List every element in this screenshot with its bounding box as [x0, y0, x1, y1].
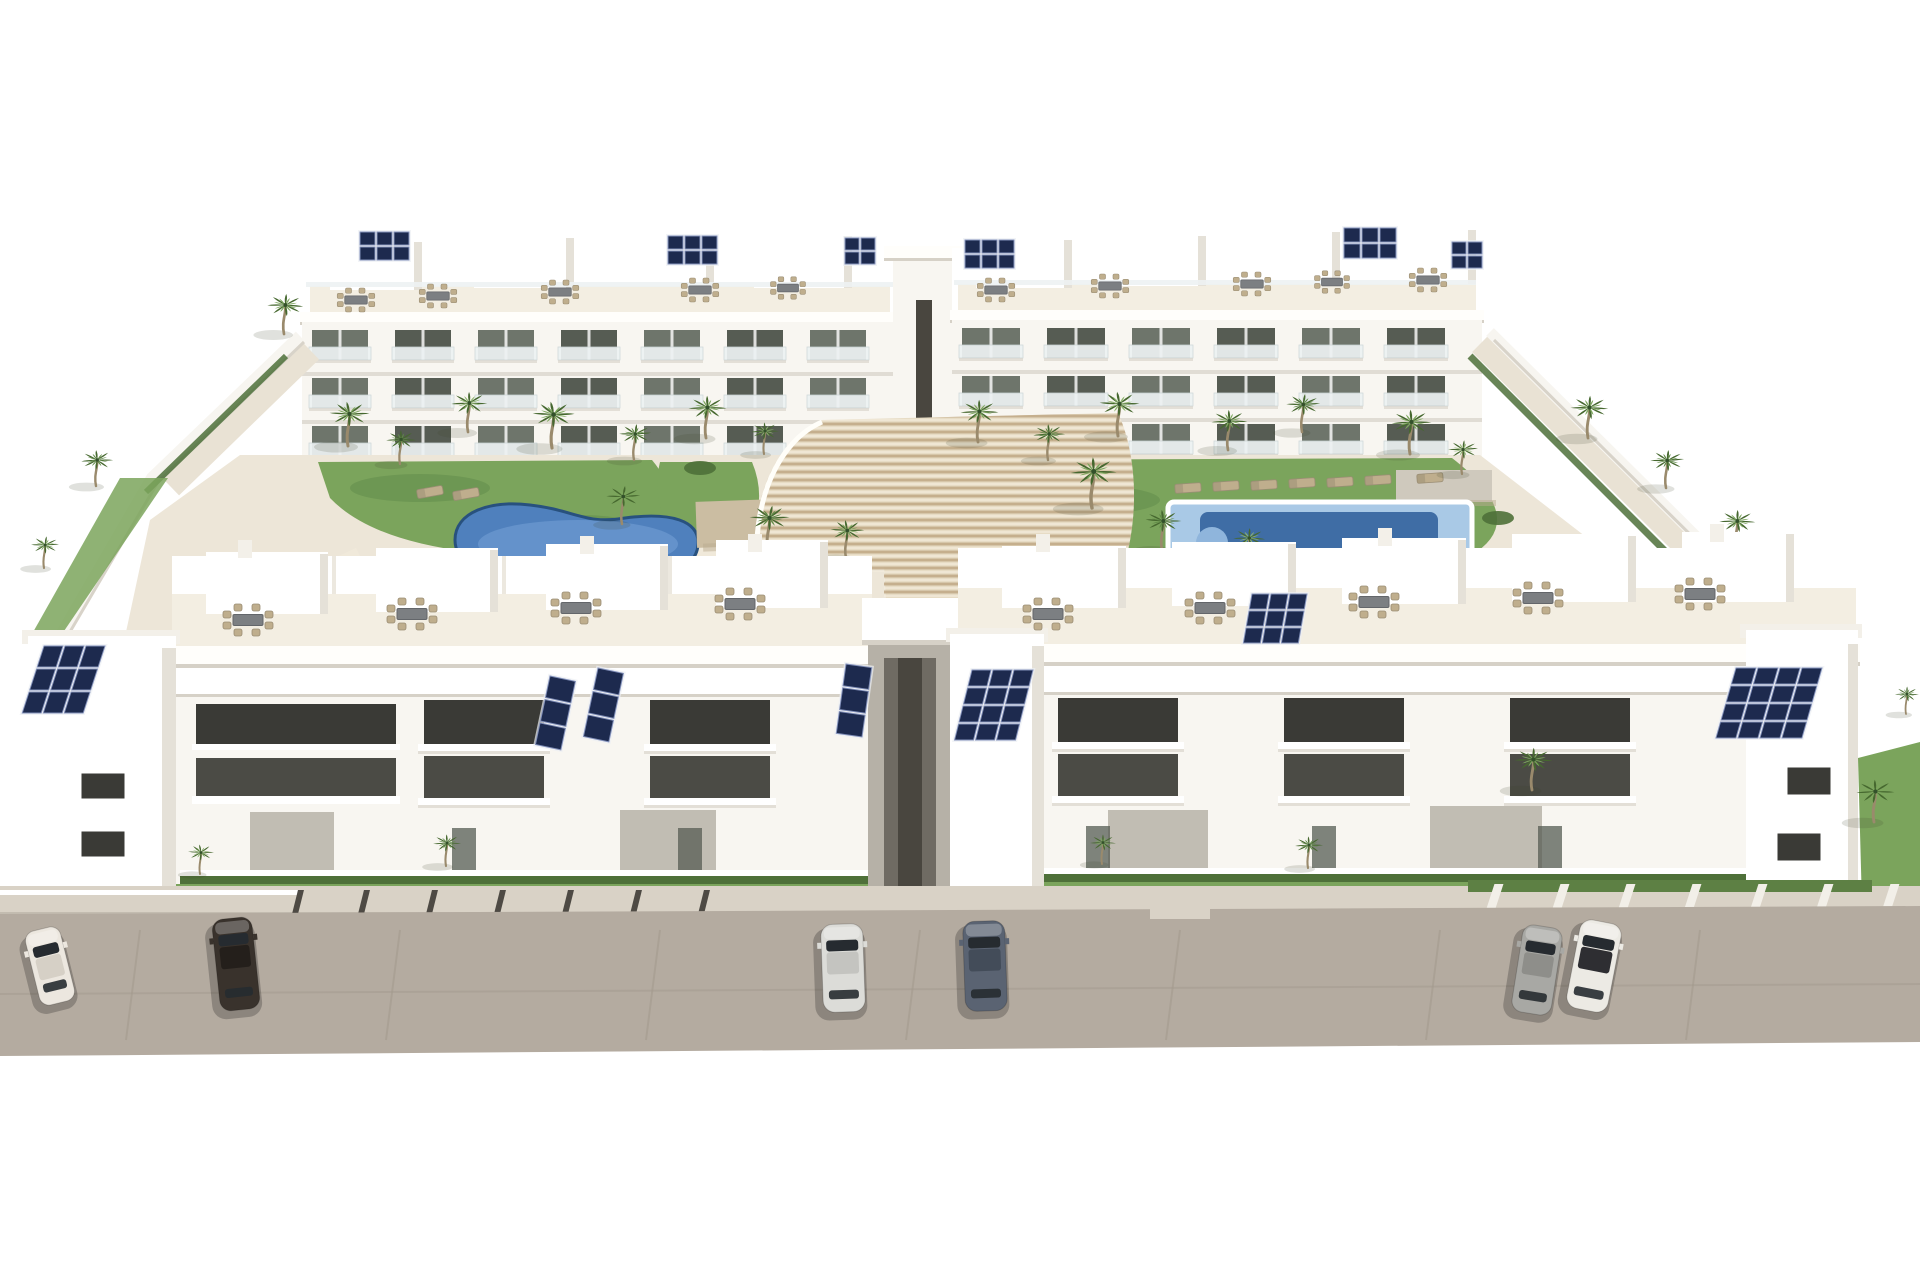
solar-panel-array — [1241, 592, 1309, 645]
glass-railing — [306, 282, 894, 287]
terrace-chair — [1513, 589, 1521, 596]
glass-balustrade — [1299, 441, 1363, 454]
terrace-table — [725, 599, 755, 610]
terrace-chair — [541, 294, 547, 299]
palm-crown-center — [551, 412, 556, 417]
solar-panel-array — [963, 238, 1016, 270]
palm-crown-center — [1047, 432, 1051, 436]
penthouse-box — [376, 548, 498, 612]
roof-vent — [1036, 534, 1050, 552]
glass-balustrade — [807, 347, 869, 360]
terrace-chair — [1185, 599, 1193, 606]
terrace-chair — [593, 599, 601, 606]
balcony-slab-shadow — [1044, 358, 1108, 361]
terrace-chair — [550, 280, 556, 285]
car-roof — [219, 945, 251, 970]
car-windshield — [968, 936, 1000, 948]
terrace-chair — [1023, 605, 1031, 612]
solar-panel — [1249, 594, 1269, 609]
terrace-chair — [1555, 589, 1563, 596]
balcony-unit — [558, 378, 620, 411]
sill-shadow — [418, 805, 550, 808]
terrace-chair — [252, 629, 260, 636]
terrace-chair — [800, 289, 806, 294]
solar-panel — [1246, 611, 1266, 626]
balcony-unit — [641, 378, 703, 411]
terrace-chair — [1704, 578, 1712, 585]
terrace-chair — [1675, 596, 1683, 603]
roof-band — [172, 668, 872, 694]
terrace-chair — [573, 285, 579, 290]
balcony-slab — [192, 796, 400, 804]
balcony-unit — [475, 426, 537, 459]
sill-shadow — [1052, 749, 1184, 752]
terrace-chair — [1065, 616, 1073, 623]
palm-shadow — [1842, 818, 1884, 828]
balcony-slab-shadow — [807, 408, 869, 411]
sun-lounger — [1327, 477, 1354, 488]
palm-shadow — [1053, 503, 1104, 516]
roof-band — [958, 666, 1858, 692]
terrace-chair — [771, 289, 777, 294]
balcony-slab-shadow — [1299, 358, 1363, 361]
solar-panel — [1765, 704, 1790, 720]
palm-crown-center — [1308, 843, 1311, 846]
solar-panel — [1284, 611, 1304, 626]
glass-balustrade — [724, 395, 786, 408]
floor-slab-line — [302, 372, 898, 376]
solar-panel-array — [1342, 226, 1398, 260]
solar-panel — [989, 670, 1012, 686]
solar-panel — [1743, 704, 1768, 720]
terrace-chair — [681, 283, 687, 288]
balcony-slab-shadow — [475, 408, 537, 411]
palm-crown-center — [1587, 405, 1591, 409]
penthouse-box — [474, 236, 574, 288]
solar-panel — [1344, 244, 1360, 258]
solar-panel — [1362, 244, 1378, 258]
palm-shadow — [253, 330, 293, 340]
solar-panel — [1782, 722, 1807, 738]
balcony-unit — [475, 330, 537, 363]
sill — [1504, 742, 1636, 749]
solar-panel — [668, 251, 683, 264]
terrace-chair — [580, 617, 588, 624]
solar-panel — [955, 724, 978, 740]
terrace-chair — [1349, 593, 1357, 600]
terrace-chair — [1418, 268, 1424, 273]
solar-panel — [1716, 722, 1741, 738]
entrance-door — [1312, 826, 1336, 870]
palm-shadow — [516, 443, 562, 455]
solar-panel-array — [1450, 240, 1484, 270]
car-roof — [826, 951, 859, 974]
car-mirror — [959, 940, 963, 946]
terrace-chair — [1704, 603, 1712, 610]
terrace-chair — [1023, 616, 1031, 623]
solar-panel — [702, 236, 717, 249]
terrace-chair — [1335, 288, 1341, 293]
terrace-chair — [1441, 282, 1447, 287]
balcony-slab-shadow — [558, 360, 620, 363]
palm-crown-center — [446, 841, 449, 844]
penthouse-box-shade — [320, 554, 328, 614]
car-windshield — [826, 939, 858, 951]
solar-panel — [394, 247, 409, 260]
palm-crown-center — [1247, 536, 1251, 540]
palm-shadow — [437, 428, 477, 438]
solar-panel — [1001, 706, 1024, 722]
terrace-chair — [986, 297, 992, 302]
glazing-opening — [1052, 754, 1184, 806]
car-hood — [966, 923, 1002, 936]
glazing-opening — [1052, 698, 1184, 752]
tower-side-shade — [1848, 644, 1858, 904]
terrace-chair — [1214, 592, 1222, 599]
palm-crown-center — [399, 438, 402, 441]
palm-shadow — [1284, 865, 1315, 873]
penthouse-box-shade — [1628, 536, 1636, 602]
solar-panel — [588, 691, 618, 718]
solar-panel — [959, 706, 982, 722]
solar-panel — [685, 236, 700, 249]
terrace-chair — [369, 293, 375, 298]
terrace-chair — [977, 283, 983, 288]
solar-panel — [1738, 722, 1763, 738]
palm-shadow — [1886, 712, 1912, 719]
terrace-chair — [223, 611, 231, 618]
window-glass — [1510, 698, 1630, 742]
glazing-opening — [1278, 754, 1410, 806]
glass-balustrade — [1384, 393, 1448, 406]
palm-crown-center — [1873, 789, 1877, 793]
tower-window — [1776, 832, 1822, 862]
balcony-slab-shadow — [959, 358, 1023, 361]
penthouse-box-shade — [490, 550, 498, 612]
glass-balustrade — [558, 443, 620, 456]
parapet — [166, 646, 874, 664]
palm-crown-center — [467, 401, 471, 405]
solar-panel-array — [358, 230, 411, 262]
terrace-chair — [346, 288, 352, 293]
penthouse-box-shade — [1118, 548, 1126, 608]
terrace-chair — [1113, 274, 1119, 279]
terrace-chair — [1227, 599, 1235, 606]
solar-panel — [861, 238, 875, 250]
sill-shadow — [1052, 803, 1184, 806]
entrance-door — [678, 828, 702, 872]
terrace-chair — [1315, 276, 1321, 281]
balcony-slab-shadow — [1214, 358, 1278, 361]
balcony-unit — [1214, 376, 1278, 409]
sill-shadow — [418, 751, 550, 754]
palm-crown-center — [44, 543, 47, 546]
terrace-chair — [1034, 623, 1042, 630]
solar-panel — [1362, 228, 1378, 242]
terrace-table — [985, 286, 1008, 294]
solar-panel — [1287, 594, 1307, 609]
glazing-opening — [418, 756, 550, 808]
terrace-chair — [1196, 617, 1204, 624]
car-rear-window — [829, 989, 859, 999]
terrace-chair — [1542, 582, 1550, 589]
palm-shadow — [740, 451, 771, 459]
glass-balustrade — [558, 395, 620, 408]
balcony-slab-shadow — [1384, 358, 1448, 361]
solar-panel — [1770, 686, 1795, 702]
terrace-chair — [428, 303, 434, 308]
terrace-chair — [429, 616, 437, 623]
penthouse-box — [1342, 538, 1466, 604]
balcony-unit — [1044, 328, 1108, 361]
balcony-slab-shadow — [724, 408, 786, 411]
sill — [644, 744, 776, 751]
terrace-table — [778, 284, 799, 292]
lounger-backrest — [1289, 479, 1298, 489]
palm-shadow — [1197, 446, 1237, 456]
garden-fence — [965, 868, 1845, 874]
sill-shadow — [644, 751, 776, 754]
balcony-unit — [1044, 376, 1108, 409]
palm-shadow — [1500, 786, 1542, 796]
solar-panel — [1721, 704, 1746, 720]
palm-shadow — [1556, 434, 1598, 444]
aerial-render — [0, 0, 1920, 1280]
terrace-chair — [563, 299, 569, 304]
solar-panel-array — [843, 236, 877, 266]
terrace-chair — [1686, 603, 1694, 610]
gap-deep-shadow — [898, 658, 922, 904]
parapet — [300, 312, 900, 322]
solar-panel — [1452, 242, 1466, 254]
terrace-chair — [1344, 276, 1350, 281]
solar-panel — [1726, 686, 1751, 702]
terrace-table — [1099, 282, 1122, 290]
terrace-chair — [265, 622, 273, 629]
terrace-chair — [398, 598, 406, 605]
roof-band-shadow — [172, 694, 872, 697]
glass-balustrade — [1129, 441, 1193, 454]
terrace-chair — [1091, 288, 1097, 293]
solar-panel — [1787, 704, 1812, 720]
balcony-unit — [1384, 376, 1448, 409]
window-glass — [1058, 698, 1178, 742]
terrace-chair — [1009, 283, 1015, 288]
penthouse-box — [206, 552, 328, 614]
terrace-chair — [713, 283, 719, 288]
glass-railing — [954, 280, 1476, 285]
roof-vent — [748, 534, 762, 552]
glass-balustrade — [558, 347, 620, 360]
balcony-slab-shadow — [641, 360, 703, 363]
glass-balustrade — [641, 395, 703, 408]
sill — [192, 744, 400, 750]
balcony-unit — [1129, 424, 1193, 457]
terrace-chair — [1227, 610, 1235, 617]
terrace-chair — [1265, 277, 1271, 282]
sun-lounger — [1289, 478, 1316, 489]
terrace-chair — [986, 278, 992, 283]
fence-rail — [0, 890, 300, 895]
palm-shadow — [69, 483, 104, 492]
terrace-chair — [451, 298, 457, 303]
sun-lounger — [1213, 481, 1240, 492]
balcony-unit — [1214, 328, 1278, 361]
terrace-chair — [771, 282, 777, 287]
car-roof — [1521, 952, 1554, 978]
palm-crown-center — [977, 409, 981, 413]
solar-panel — [1243, 628, 1263, 643]
balcony-unit — [1299, 328, 1363, 361]
terrace-chair — [1185, 610, 1193, 617]
terrace-table — [427, 292, 450, 300]
solar-panel — [1265, 611, 1285, 626]
solar-panel — [997, 724, 1020, 740]
terrace-chair — [1065, 605, 1073, 612]
bush — [684, 461, 716, 475]
solar-panel — [1760, 722, 1785, 738]
parapet — [950, 310, 1484, 320]
solar-panel — [985, 688, 1008, 704]
palm-crown-center — [767, 516, 771, 520]
terrace-chair — [1100, 274, 1106, 279]
palm-crown-center — [705, 405, 709, 409]
terrace-chair — [1349, 604, 1357, 611]
solar-panel — [1748, 686, 1773, 702]
terrace-chair — [337, 293, 343, 298]
terrace-chair — [791, 294, 797, 299]
palm-shadow — [20, 565, 51, 573]
lounger-backrest — [1327, 478, 1336, 488]
terrace-chair — [416, 598, 424, 605]
palm-crown-center — [633, 432, 637, 436]
sill-shadow — [1278, 749, 1410, 752]
terrace-chair — [398, 623, 406, 630]
penthouse-box-shade — [1786, 534, 1794, 602]
terrace-chair — [1052, 598, 1060, 605]
palm-shadow — [1437, 471, 1470, 479]
glass-balustrade — [641, 443, 703, 456]
glazing-opening — [644, 700, 776, 754]
tower-window — [1786, 766, 1832, 796]
balcony-unit — [392, 378, 454, 411]
street-hedge — [1468, 880, 1872, 892]
lounger-backrest — [452, 490, 461, 500]
roof-vent — [580, 536, 594, 554]
lounger-backrest — [1213, 482, 1222, 492]
solar-panel — [394, 232, 409, 245]
glazing-opening — [418, 700, 550, 754]
terrace-chair — [580, 592, 588, 599]
palm-crown-center — [1102, 841, 1105, 844]
balcony-slab-shadow — [392, 408, 454, 411]
terrace-table — [689, 286, 712, 294]
solar-panel — [965, 240, 980, 253]
terrace-chair — [265, 611, 273, 618]
penthouse-box — [1512, 534, 1636, 602]
lounger-backrest — [1175, 484, 1184, 494]
palm-shadow — [607, 457, 642, 466]
tower-side-shade — [1032, 646, 1044, 902]
palm-shadow — [375, 461, 408, 469]
solar-panel — [360, 247, 375, 260]
balcony-slab-shadow — [392, 360, 454, 363]
car-roof — [968, 948, 1001, 971]
lounger-backrest — [1417, 474, 1426, 484]
terrace-chair — [234, 629, 242, 636]
terrace-chair — [703, 297, 709, 302]
gap-bridge — [862, 598, 960, 642]
terrace-chair — [593, 610, 601, 617]
palm-crown-center — [95, 458, 99, 462]
terrace-chair — [337, 302, 343, 307]
penthouse-box — [716, 540, 828, 608]
balcony-unit — [309, 330, 371, 363]
terrace-chair — [1255, 291, 1261, 296]
terrace-chair — [1431, 287, 1437, 292]
terrace-chair — [1418, 287, 1424, 292]
balcony-slab-shadow — [309, 360, 371, 363]
penthouse-box — [1002, 546, 1126, 608]
terrace-chair — [1123, 288, 1129, 293]
solar-panel — [377, 232, 392, 245]
terrace-chair — [726, 588, 734, 595]
terrace-chair — [573, 294, 579, 299]
terrace-chair — [703, 278, 709, 283]
penthouse-box-shade — [1332, 232, 1340, 284]
lounger-backrest — [1251, 481, 1260, 491]
balcony-unit — [641, 330, 703, 363]
sill — [1504, 796, 1636, 803]
terrace-chair — [1542, 607, 1550, 614]
palm-shadow — [422, 863, 453, 871]
terrace-chair — [1123, 279, 1129, 284]
balcony-unit — [724, 330, 786, 363]
terrace-chair — [800, 282, 806, 287]
palm-shadow — [1637, 484, 1674, 493]
glass-balustrade — [1214, 345, 1278, 358]
sill-shadow — [1278, 803, 1410, 806]
parapet — [954, 644, 1860, 662]
balcony-unit — [1129, 328, 1193, 361]
terrace-chair — [1675, 585, 1683, 592]
glass-balustrade — [392, 347, 454, 360]
terrace-chair — [428, 284, 434, 289]
sill-shadow — [1504, 749, 1636, 752]
terrace-chair — [1113, 293, 1119, 298]
balcony-unit — [1299, 424, 1363, 457]
terrace-chair — [1513, 600, 1521, 607]
solar-panel — [845, 238, 859, 250]
lounger-backrest — [1365, 476, 1374, 486]
balcony-slab-shadow — [558, 408, 620, 411]
terrace-chair — [419, 298, 425, 303]
solar-panel — [836, 712, 865, 737]
balcony-unit — [558, 426, 620, 459]
penthouse-box-shade — [660, 546, 668, 610]
glazing-opening — [1504, 754, 1636, 806]
terrace-chair — [563, 280, 569, 285]
car-rear-window — [971, 988, 1001, 998]
terrace-table — [1359, 597, 1389, 608]
palm-crown-center — [1117, 402, 1121, 406]
terrace-chair — [252, 604, 260, 611]
terrace-chair — [1409, 282, 1415, 287]
solar-panel — [535, 723, 565, 750]
driveway-entrance — [1150, 906, 1210, 919]
balcony-slab-shadow — [1044, 406, 1108, 409]
glass-balustrade — [807, 395, 869, 408]
